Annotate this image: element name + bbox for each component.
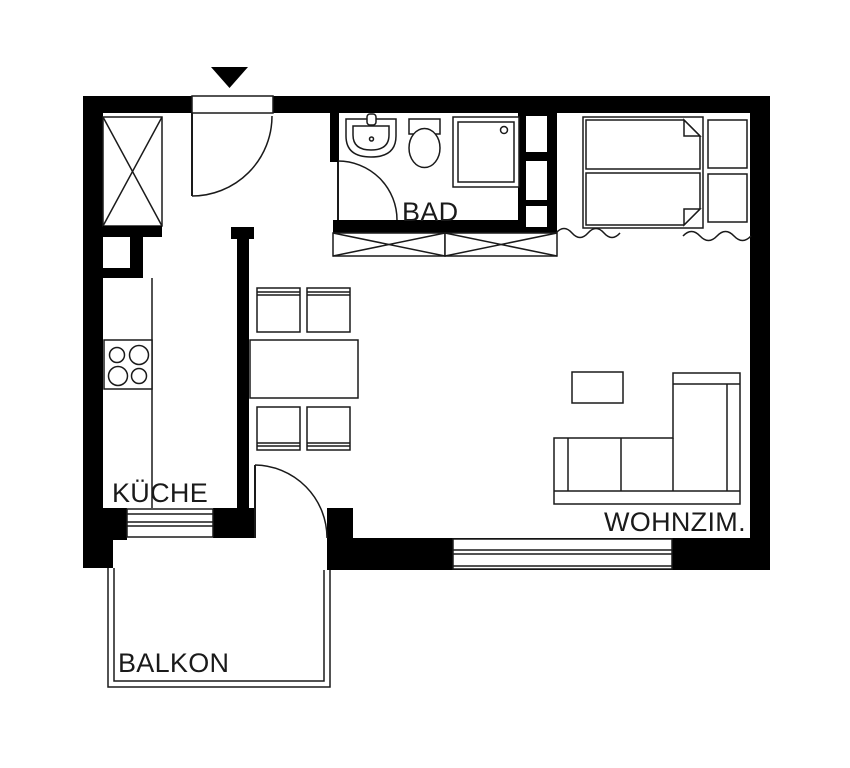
entrance-door-opening [192, 96, 273, 113]
room-label-living-room: WOHNZIM. [604, 509, 746, 536]
bathroom-left-wall [330, 113, 339, 162]
kitchen-window-frame [127, 509, 213, 537]
dining-chair-icon [307, 288, 350, 332]
entrance-door-swing-icon [192, 113, 272, 196]
dining-chair-icon [257, 288, 300, 332]
dining-table-icon [250, 340, 358, 398]
stove-icon [104, 340, 152, 389]
hall-divider-cap [231, 227, 254, 239]
shaft-icon [103, 226, 162, 278]
room-label-balcony: BALKON [118, 650, 229, 677]
toilet-icon [409, 119, 440, 168]
wall-niche-shelf-icon [526, 116, 547, 227]
shower-icon [453, 117, 519, 187]
left-wall [83, 113, 103, 508]
room-label-kitchen: KÜCHE [112, 480, 208, 507]
bathroom-door-swing-icon [338, 161, 397, 220]
room-label-bathroom: BAD [402, 199, 458, 226]
living-room-window-icon [453, 539, 672, 569]
hall-cabinet-icon [333, 233, 557, 256]
nightstand-icon [708, 120, 747, 222]
hall-divider-wall [237, 239, 249, 508]
dining-chair-icon [307, 407, 350, 450]
right-wall [750, 113, 770, 570]
double-bed-icon [583, 117, 703, 228]
dining-chair-icon [257, 407, 300, 450]
top-wall-left [83, 96, 192, 113]
entrance-arrow-icon [211, 67, 248, 88]
kitchen-window-icon [127, 509, 213, 537]
niche-2 [526, 161, 547, 200]
niche-3 [526, 206, 547, 227]
niche-1 [526, 116, 547, 152]
coffee-table-icon [572, 372, 623, 403]
balcony-door-swing-icon [255, 465, 327, 538]
dining-set [250, 288, 358, 450]
left-corner-block-upper [83, 508, 127, 540]
floorplan-canvas: BAD KÜCHE WOHNZIM. BALKON [0, 0, 850, 768]
kitchen-bottom-wall-segment [213, 508, 255, 538]
left-corner-block-lower [83, 540, 113, 568]
wardrobe-icon [103, 117, 162, 226]
sink-icon [346, 114, 396, 157]
break-line-icon [556, 229, 751, 241]
balcony-door-side-block [327, 508, 353, 538]
top-wall-right [273, 96, 770, 113]
